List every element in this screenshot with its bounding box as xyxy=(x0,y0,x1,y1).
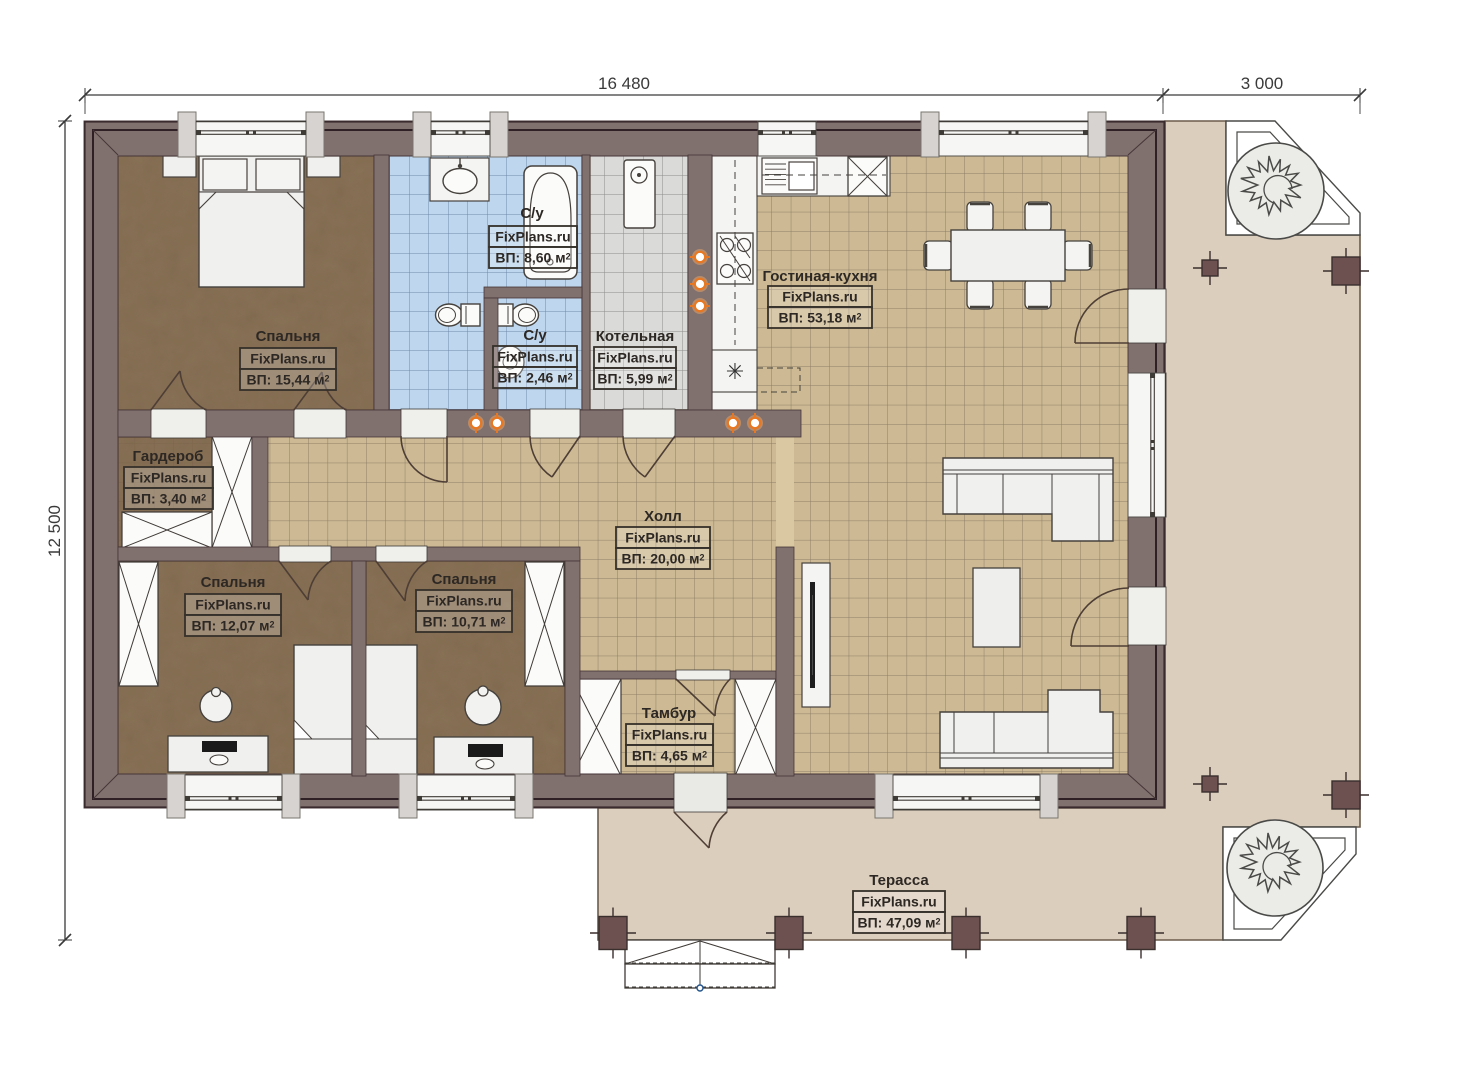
svg-text:FixPlans.ru: FixPlans.ru xyxy=(632,727,707,743)
svg-text:16 480: 16 480 xyxy=(598,74,650,93)
svg-text:Гардероб: Гардероб xyxy=(133,448,204,465)
svg-text:FixPlans.ru: FixPlans.ru xyxy=(625,530,700,546)
svg-text:Терасса: Терасса xyxy=(869,872,929,889)
svg-text:ВП: 15,44 м2: ВП: 15,44 м2 xyxy=(246,372,329,388)
svg-text:FixPlans.ru: FixPlans.ru xyxy=(861,894,936,910)
svg-text:ВП: 10,71 м2: ВП: 10,71 м2 xyxy=(422,614,505,630)
svg-text:ВП: 3,40 м2: ВП: 3,40 м2 xyxy=(131,491,206,507)
svg-text:Тамбур: Тамбур xyxy=(642,705,696,722)
svg-text:3 000: 3 000 xyxy=(1241,74,1284,93)
svg-text:ВП: 53,18 м2: ВП: 53,18 м2 xyxy=(778,310,861,326)
svg-text:Спальня: Спальня xyxy=(432,571,497,588)
svg-text:FixPlans.ru: FixPlans.ru xyxy=(782,289,857,305)
svg-text:ВП: 47,09 м2: ВП: 47,09 м2 xyxy=(857,915,940,931)
svg-text:Спальня: Спальня xyxy=(201,574,266,591)
svg-text:FixPlans.ru: FixPlans.ru xyxy=(250,351,325,367)
svg-text:ВП: 2,46 м2: ВП: 2,46 м2 xyxy=(497,370,572,386)
svg-text:ВП: 5,99 м2: ВП: 5,99 м2 xyxy=(597,371,672,387)
svg-text:Котельная: Котельная xyxy=(596,328,675,345)
svg-text:С/у: С/у xyxy=(523,327,547,344)
svg-text:ВП: 4,65 м2: ВП: 4,65 м2 xyxy=(632,748,707,764)
svg-text:✳: ✳ xyxy=(726,359,744,384)
svg-text:Холл: Холл xyxy=(644,508,682,525)
svg-text:ВП: 8,60 м2: ВП: 8,60 м2 xyxy=(495,250,570,266)
svg-text:FixPlans.ru: FixPlans.ru xyxy=(497,349,572,365)
svg-text:ВП: 12,07 м2: ВП: 12,07 м2 xyxy=(191,618,274,634)
svg-text:ВП: 20,00 м2: ВП: 20,00 м2 xyxy=(621,551,704,567)
svg-text:Гостиная-кухня: Гостиная-кухня xyxy=(763,268,878,285)
svg-text:FixPlans.ru: FixPlans.ru xyxy=(426,593,501,609)
svg-text:Спальня: Спальня xyxy=(256,328,321,345)
svg-text:FixPlans.ru: FixPlans.ru xyxy=(597,350,672,366)
svg-text:FixPlans.ru: FixPlans.ru xyxy=(195,597,270,613)
svg-text:12 500: 12 500 xyxy=(45,505,64,557)
svg-text:С/у: С/у xyxy=(520,205,544,222)
svg-text:FixPlans.ru: FixPlans.ru xyxy=(495,229,570,245)
svg-text:FixPlans.ru: FixPlans.ru xyxy=(131,470,206,486)
